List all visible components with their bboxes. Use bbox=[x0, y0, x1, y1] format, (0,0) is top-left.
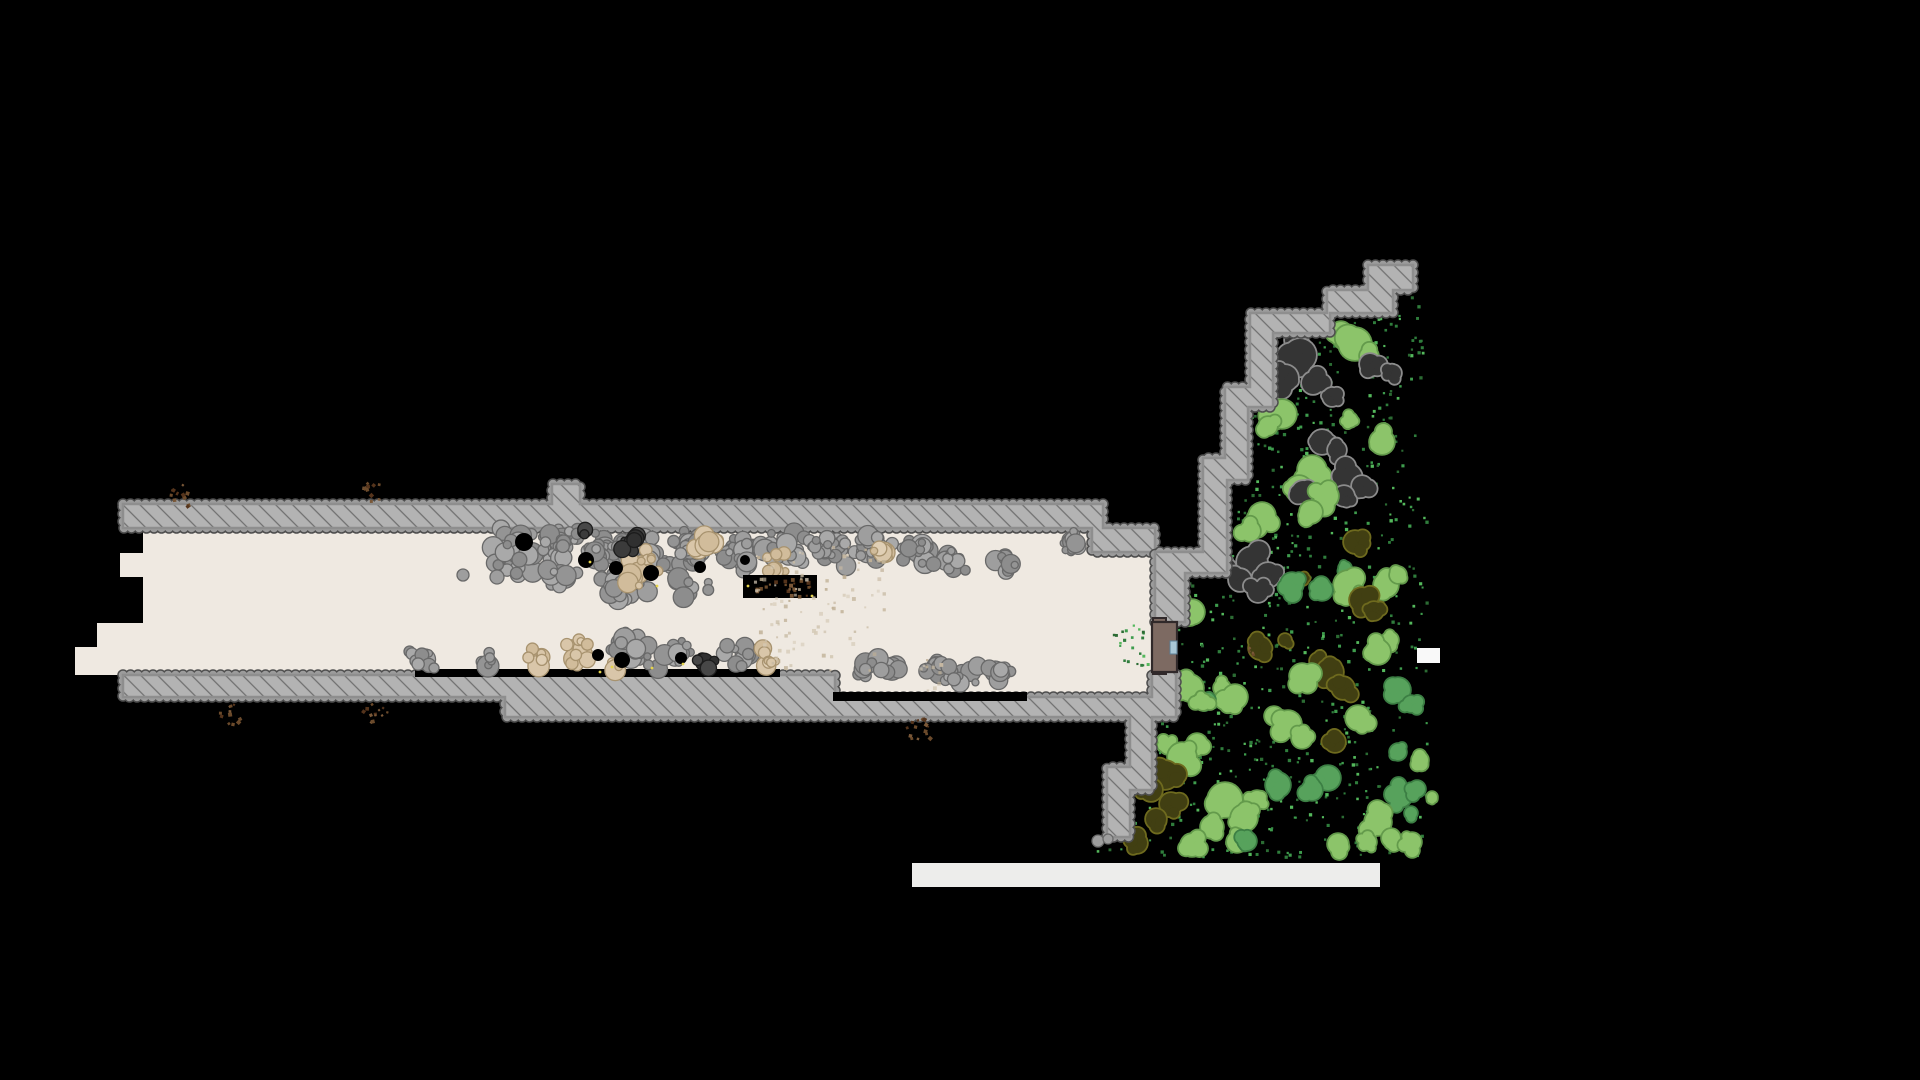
tunnel-door[interactable] bbox=[1152, 618, 1177, 674]
game-viewport[interactable] bbox=[0, 0, 1920, 1080]
bottom-bar bbox=[912, 863, 1380, 887]
map-canvas bbox=[0, 0, 1920, 1080]
map-chip bbox=[1417, 648, 1440, 663]
door-window bbox=[1170, 641, 1177, 654]
